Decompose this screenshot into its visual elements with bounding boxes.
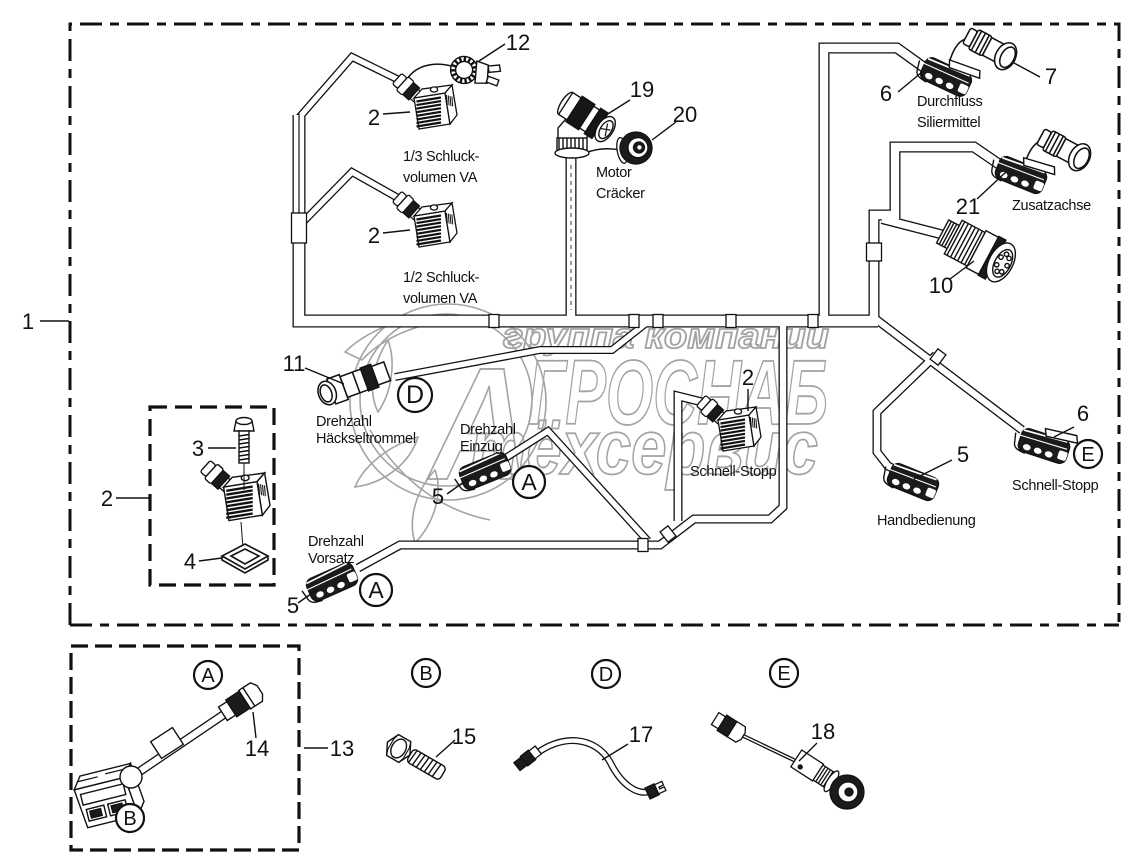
svg-text:Häckseltrommel: Häckseltrommel (316, 431, 416, 447)
svg-text:1/3 Schluck-: 1/3 Schluck- (403, 149, 480, 165)
svg-text:Einzug: Einzug (460, 439, 503, 455)
svg-text:E: E (777, 663, 790, 685)
svg-text:Durchfluss: Durchfluss (917, 94, 983, 110)
svg-text:volumen VA: volumen VA (403, 291, 478, 307)
svg-text:Drehzahl: Drehzahl (460, 422, 516, 438)
svg-text:2: 2 (368, 105, 380, 130)
svg-text:7: 7 (1045, 64, 1057, 89)
svg-text:19: 19 (630, 77, 654, 102)
svg-text:A: A (201, 665, 215, 687)
svg-text:14: 14 (245, 736, 269, 761)
svg-text:17: 17 (629, 722, 653, 747)
svg-text:Vorsatz: Vorsatz (308, 551, 354, 567)
svg-text:D: D (599, 664, 613, 686)
svg-text:21: 21 (956, 194, 980, 219)
svg-text:2: 2 (101, 486, 113, 511)
svg-text:1/2 Schluck-: 1/2 Schluck- (403, 270, 480, 286)
svg-text:A: A (368, 577, 384, 603)
svg-text:Motor: Motor (596, 165, 632, 181)
svg-text:Zusatzachse: Zusatzachse (1012, 198, 1091, 214)
svg-text:6: 6 (880, 81, 892, 106)
svg-text:Drehzahl: Drehzahl (316, 414, 372, 430)
svg-text:B: B (123, 808, 136, 830)
svg-text:Drehzahl: Drehzahl (308, 534, 364, 550)
svg-text:Cräcker: Cräcker (596, 186, 645, 202)
svg-text:5: 5 (432, 484, 444, 509)
svg-text:18: 18 (811, 719, 835, 744)
svg-text:5: 5 (287, 593, 299, 618)
svg-text:15: 15 (452, 724, 476, 749)
svg-text:Siliermittel: Siliermittel (917, 115, 980, 131)
svg-text:6: 6 (1077, 401, 1089, 426)
svg-text:A: A (521, 469, 537, 495)
svg-text:Schnell-Stopp: Schnell-Stopp (1012, 478, 1099, 494)
svg-text:volumen VA: volumen VA (403, 170, 478, 186)
svg-text:E: E (1081, 444, 1094, 466)
svg-text:2: 2 (368, 223, 380, 248)
svg-text:Handbedienung: Handbedienung (877, 513, 976, 529)
svg-text:11: 11 (283, 351, 306, 376)
svg-text:5: 5 (957, 442, 969, 467)
svg-text:2: 2 (742, 365, 754, 390)
svg-text:D: D (406, 381, 424, 409)
svg-text:B: B (419, 663, 432, 685)
svg-text:Schnell-Stopp: Schnell-Stopp (690, 464, 777, 480)
svg-text:12: 12 (506, 30, 530, 55)
svg-text:10: 10 (929, 273, 953, 298)
svg-text:13: 13 (330, 736, 354, 761)
svg-text:20: 20 (673, 102, 697, 127)
svg-text:4: 4 (184, 549, 196, 574)
svg-text:1: 1 (22, 309, 34, 334)
svg-text:3: 3 (192, 436, 204, 461)
